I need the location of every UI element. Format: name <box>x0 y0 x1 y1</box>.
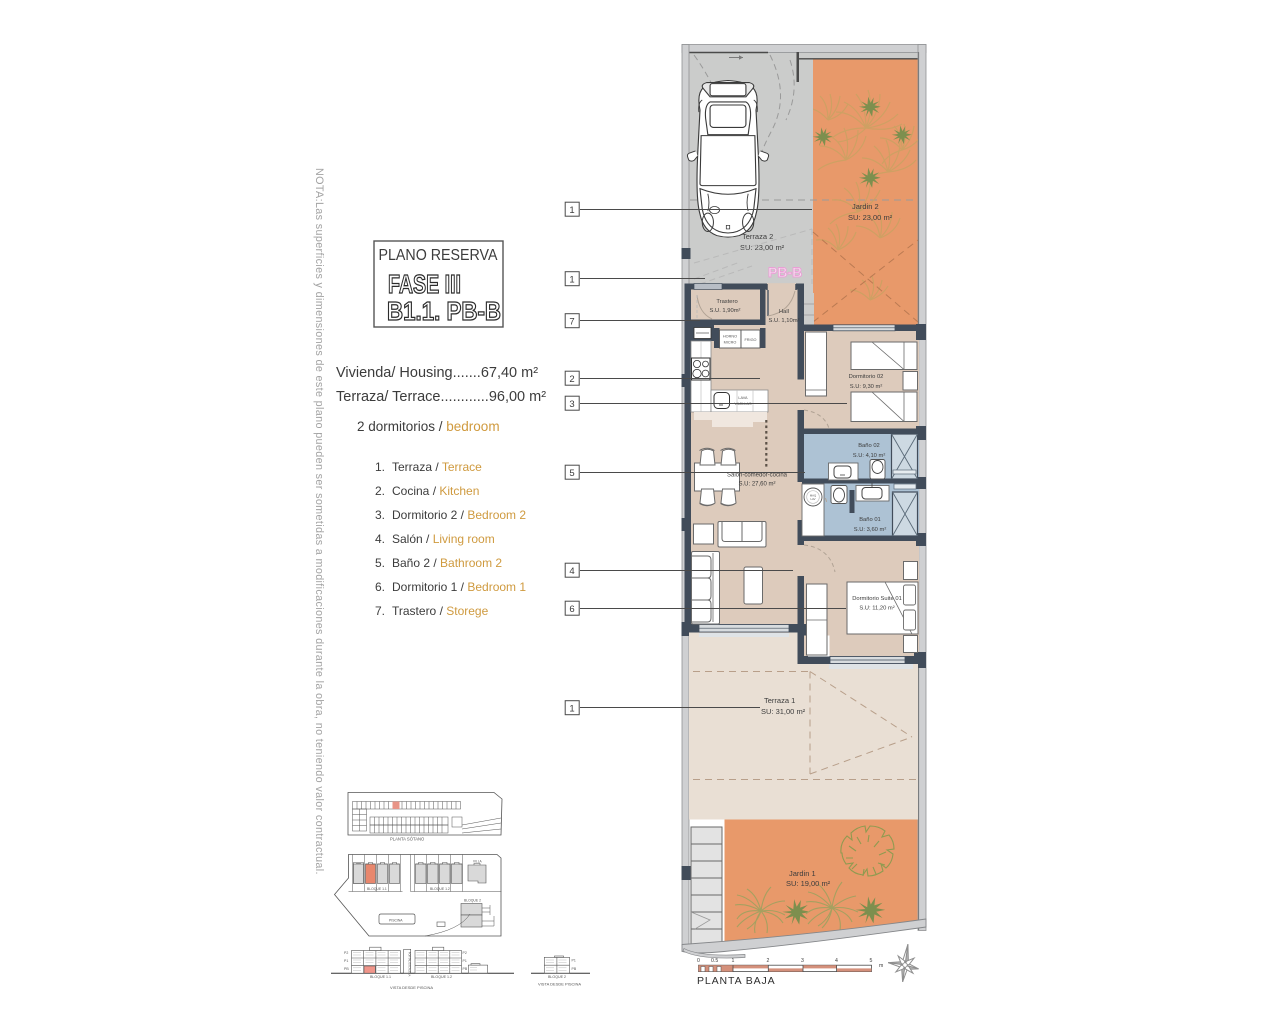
svg-text:VILLA: VILLA <box>473 860 483 864</box>
svg-text:1: 1 <box>569 205 574 216</box>
svg-text:SU: 19,00 m²: SU: 19,00 m² <box>786 879 831 888</box>
svg-text:S.U: 4,10 m²: S.U: 4,10 m² <box>853 453 886 459</box>
svg-text:Jardin 1: Jardin 1 <box>789 869 816 878</box>
svg-text:2 dormitorios / bedroom: 2 dormitorios / bedroom <box>357 419 500 434</box>
svg-text:P1: P1 <box>572 959 576 963</box>
svg-text:0: 0 <box>697 958 700 964</box>
svg-text:BLOQUE 2: BLOQUE 2 <box>548 975 566 979</box>
svg-text:P2: P2 <box>344 951 348 955</box>
svg-text:Terraza / Terrace: Terraza / Terrace <box>392 460 482 474</box>
svg-text:1: 1 <box>569 275 574 286</box>
svg-text:Cocina / Kitchen: Cocina / Kitchen <box>392 484 479 498</box>
svg-text:7.: 7. <box>375 604 385 618</box>
svg-text:FASE III: FASE III <box>388 269 461 299</box>
svg-text:SU: 23,00 m²: SU: 23,00 m² <box>848 213 893 222</box>
svg-text:BLOQUE 1.1: BLOQUE 1.1 <box>367 887 387 891</box>
svg-text:VISTA DESDE PISCINA: VISTA DESDE PISCINA <box>538 982 581 987</box>
svg-text:PLANTA BAJA: PLANTA BAJA <box>697 975 776 987</box>
svg-text:2: 2 <box>569 374 574 385</box>
svg-text:Dormitorio 1 / Bedroom 1: Dormitorio 1 / Bedroom 1 <box>392 580 526 594</box>
svg-text:HORNO: HORNO <box>723 335 737 339</box>
svg-text:PB: PB <box>344 967 349 971</box>
svg-text:SU: 31,00 m²: SU: 31,00 m² <box>761 707 806 716</box>
svg-text:Baño 01: Baño 01 <box>859 517 881 523</box>
svg-text:LAV: LAV <box>810 497 815 501</box>
svg-text:Vivienda/ Housing.......67,40: Vivienda/ Housing.......67,40 m² <box>336 365 538 381</box>
svg-text:PB: PB <box>572 967 577 971</box>
svg-text:P1: P1 <box>344 959 348 963</box>
svg-text:3.: 3. <box>375 508 385 522</box>
svg-text:S.U. 1,10m²: S.U. 1,10m² <box>769 318 800 324</box>
svg-text:Terraza/ Terrace............96: Terraza/ Terrace............96,00 m² <box>336 389 546 405</box>
svg-text:2: 2 <box>767 958 770 964</box>
svg-text:PLANO RESERVA: PLANO RESERVA <box>379 247 498 264</box>
svg-text:Terraza 1: Terraza 1 <box>764 696 795 705</box>
svg-text:m: m <box>879 963 883 969</box>
svg-text:S.U. 1,90m²: S.U. 1,90m² <box>710 308 741 314</box>
svg-text:BLOQUE 1.2: BLOQUE 1.2 <box>431 975 452 979</box>
svg-text:7: 7 <box>569 317 574 328</box>
svg-text:Dormitorio Suite 01: Dormitorio Suite 01 <box>852 596 902 602</box>
svg-text:Jardin 2: Jardin 2 <box>852 202 879 211</box>
svg-text:1: 1 <box>569 704 574 715</box>
svg-text:S.U: 3,60 m²: S.U: 3,60 m² <box>854 527 887 533</box>
svg-text:BLOQUE 1.1: BLOQUE 1.1 <box>370 975 391 979</box>
svg-text:PISCINA: PISCINA <box>389 919 403 923</box>
svg-text:2.: 2. <box>375 484 385 498</box>
svg-text:NOTA:Las superficies y dimensi: NOTA:Las superficies y dimensiones de es… <box>313 168 325 875</box>
svg-text:S.U: 27,60 m²: S.U: 27,60 m² <box>738 482 775 488</box>
svg-text:B1.1. PB-B: B1.1. PB-B <box>387 296 501 326</box>
svg-text:LAVA: LAVA <box>738 396 748 400</box>
svg-text:Terraza 2: Terraza 2 <box>742 232 773 241</box>
svg-text:4: 4 <box>835 958 838 964</box>
svg-text:0.5: 0.5 <box>711 958 718 964</box>
svg-text:Trastero / Storege: Trastero / Storege <box>392 604 489 618</box>
svg-text:5: 5 <box>870 958 873 964</box>
svg-text:Salón / Living room: Salón / Living room <box>392 532 495 546</box>
svg-text:PB-B: PB-B <box>768 264 802 280</box>
svg-text:BLOQUE 1.2: BLOQUE 1.2 <box>430 887 450 891</box>
svg-text:4.: 4. <box>375 532 385 546</box>
svg-text:PLANTA SÓTANO: PLANTA SÓTANO <box>390 837 425 842</box>
svg-text:4: 4 <box>569 566 574 577</box>
svg-text:P1: P1 <box>463 959 467 963</box>
svg-text:PORTAL ESCALERA: PORTAL ESCALERA <box>407 952 411 977</box>
svg-text:Baño 02: Baño 02 <box>858 443 880 449</box>
svg-text:Dormitorio 02: Dormitorio 02 <box>849 374 884 380</box>
svg-text:6.: 6. <box>375 580 385 594</box>
svg-text:3: 3 <box>569 399 574 410</box>
svg-text:Trastero: Trastero <box>716 299 737 305</box>
svg-text:Hall: Hall <box>779 309 789 315</box>
svg-text:Baño 2 / Bathroom 2: Baño 2 / Bathroom 2 <box>392 556 502 570</box>
svg-text:PB: PB <box>463 967 468 971</box>
svg-text:BLOQUE 2: BLOQUE 2 <box>464 899 481 903</box>
svg-text:1.: 1. <box>375 460 385 474</box>
svg-text:6: 6 <box>569 604 574 615</box>
svg-text:1: 1 <box>732 958 735 964</box>
svg-text:5.: 5. <box>375 556 385 570</box>
svg-text:Salón-comedor-cocina: Salón-comedor-cocina <box>727 473 788 479</box>
svg-text:S.U: 9,30 m²: S.U: 9,30 m² <box>850 384 883 390</box>
svg-text:MICRO: MICRO <box>724 341 737 345</box>
svg-text:FRIGO: FRIGO <box>744 338 756 342</box>
svg-text:S.U: 11,20 m²: S.U: 11,20 m² <box>859 606 894 612</box>
svg-text:Dormitorio 2 / Bedroom 2: Dormitorio 2 / Bedroom 2 <box>392 508 526 522</box>
svg-text:VISTA DESDE PISCINA: VISTA DESDE PISCINA <box>390 985 433 990</box>
svg-text:3: 3 <box>801 958 804 964</box>
svg-text:P2: P2 <box>463 951 467 955</box>
svg-text:5: 5 <box>569 468 574 479</box>
